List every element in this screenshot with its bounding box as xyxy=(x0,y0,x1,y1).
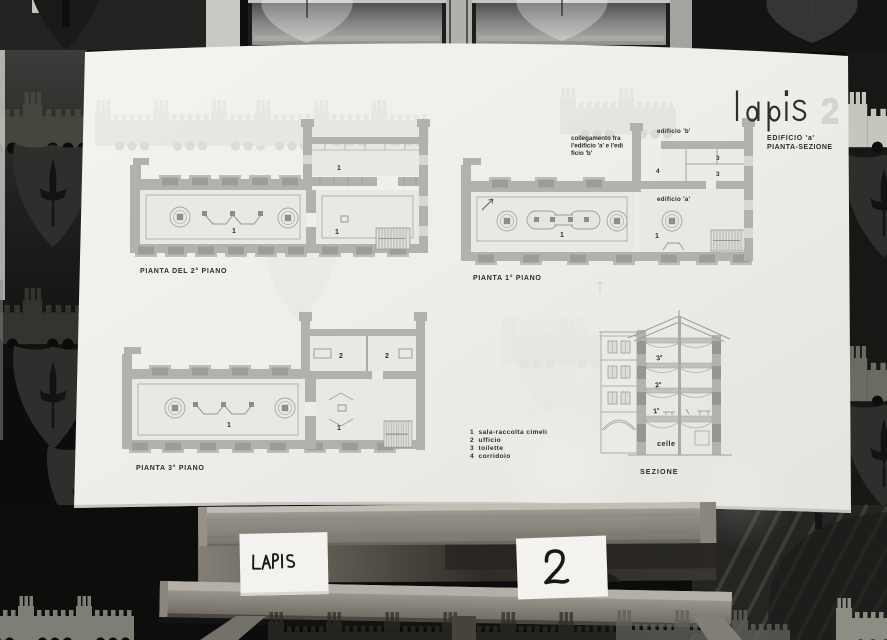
svg-text:PIANTA 3° PIANO: PIANTA 3° PIANO xyxy=(136,464,205,472)
svg-text:1: 1 xyxy=(227,422,231,429)
svg-text:1: 1 xyxy=(337,165,341,172)
svg-text:SEZIONE: SEZIONE xyxy=(640,467,679,476)
svg-text:2°: 2° xyxy=(655,381,663,390)
svg-text:celle: celle xyxy=(657,439,676,448)
svg-text:1: 1 xyxy=(232,228,236,235)
svg-text:1°: 1° xyxy=(653,407,661,416)
svg-text:3 toilette: 3 toilette xyxy=(470,445,503,452)
svg-text:1: 1 xyxy=(560,232,564,239)
svg-text:1 sala-raccolta cimeli: 1 sala-raccolta cimeli xyxy=(470,429,547,436)
svg-text:3: 3 xyxy=(716,171,720,178)
svg-text:PIANTA-SEZIONE: PIANTA-SEZIONE xyxy=(767,144,833,151)
svg-text:ficio 'b': ficio 'b' xyxy=(571,150,593,157)
svg-text:edificio 'b': edificio 'b' xyxy=(657,128,691,135)
svg-text:2 ufficio: 2 ufficio xyxy=(470,437,501,444)
svg-text:3°: 3° xyxy=(656,354,664,363)
svg-text:PIANTA DEL 2° PIANO: PIANTA DEL 2° PIANO xyxy=(140,267,227,275)
svg-text:1: 1 xyxy=(655,233,659,240)
svg-text:3: 3 xyxy=(716,155,720,162)
svg-text:4: 4 xyxy=(656,168,660,175)
svg-text:1: 1 xyxy=(335,229,339,236)
svg-text:1: 1 xyxy=(337,425,341,432)
svg-text:EDIFICIO 'a': EDIFICIO 'a' xyxy=(767,135,815,142)
svg-text:4 corridoio: 4 corridoio xyxy=(470,453,511,460)
svg-text:l'edificio 'a' e l'edi: l'edificio 'a' e l'edi xyxy=(571,143,623,150)
svg-text:collegamento fra: collegamento fra xyxy=(571,135,621,142)
svg-text:2: 2 xyxy=(339,353,343,360)
svg-text:2: 2 xyxy=(385,353,389,360)
svg-text:edificio 'a': edificio 'a' xyxy=(657,196,691,203)
svg-text:PIANTA 1° PIANO: PIANTA 1° PIANO xyxy=(473,274,542,282)
